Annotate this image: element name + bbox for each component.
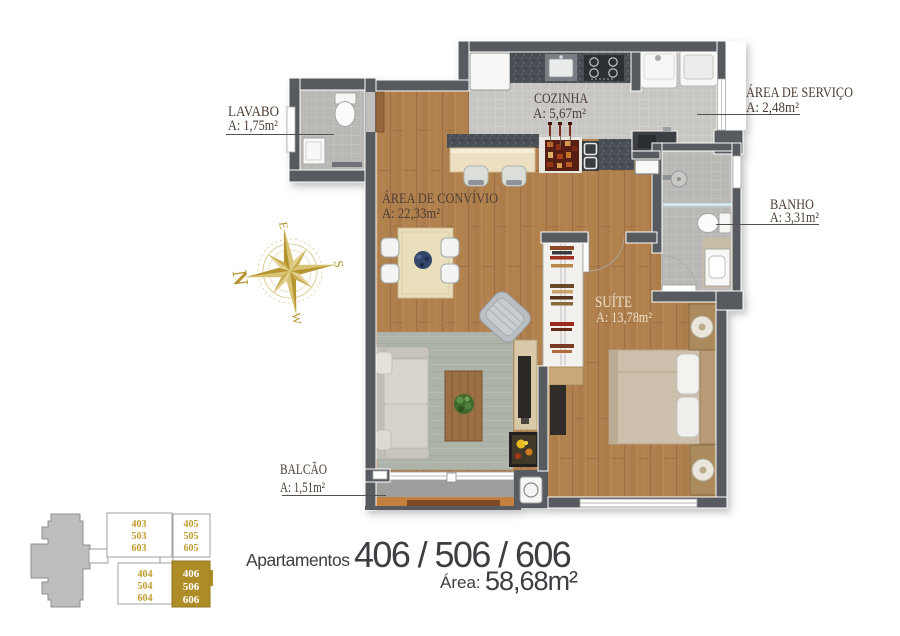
svg-text:503: 503 [132, 531, 147, 542]
svg-text:S: S [331, 259, 347, 268]
svg-text:A: 5,67m²: A: 5,67m² [533, 106, 587, 122]
svg-text:ÁREA DE SERVIÇO: ÁREA DE SERVIÇO [746, 84, 853, 101]
svg-text:E: E [276, 221, 291, 230]
svg-text:603: 603 [132, 543, 147, 554]
svg-text:N: N [228, 269, 254, 287]
svg-text:A: 2,48m²: A: 2,48m² [746, 100, 800, 116]
svg-text:A: 3,31m²: A: 3,31m² [770, 210, 820, 226]
svg-text:A: 13,78m²: A: 13,78m² [596, 310, 653, 326]
svg-text:BALCÃO: BALCÃO [280, 462, 327, 478]
svg-text:504: 504 [138, 581, 153, 592]
svg-text:W: W [289, 312, 305, 326]
svg-text:606: 606 [183, 594, 200, 606]
svg-text:COZINHA: COZINHA [534, 91, 588, 107]
svg-text:604: 604 [138, 593, 153, 604]
svg-text:A: 1,51m²: A: 1,51m² [280, 480, 325, 496]
svg-text:A: 22,33m²: A: 22,33m² [382, 206, 441, 222]
svg-text:505: 505 [184, 531, 199, 542]
svg-text:405: 405 [184, 519, 199, 530]
svg-text:58,68m²: 58,68m² [485, 566, 578, 596]
svg-text:404: 404 [138, 569, 153, 580]
svg-text:Área:: Área: [440, 573, 481, 592]
svg-text:403: 403 [132, 519, 147, 530]
svg-text:506: 506 [183, 581, 200, 593]
svg-text:SUÍTE: SUÍTE [595, 292, 632, 311]
svg-text:Apartamentos: Apartamentos [246, 550, 350, 570]
svg-text:A: 1,75m²: A: 1,75m² [228, 118, 279, 134]
svg-text:605: 605 [184, 543, 199, 554]
svg-text:ÁREA DE CONVÍVIO: ÁREA DE CONVÍVIO [382, 190, 498, 207]
svg-text:406: 406 [183, 568, 200, 580]
